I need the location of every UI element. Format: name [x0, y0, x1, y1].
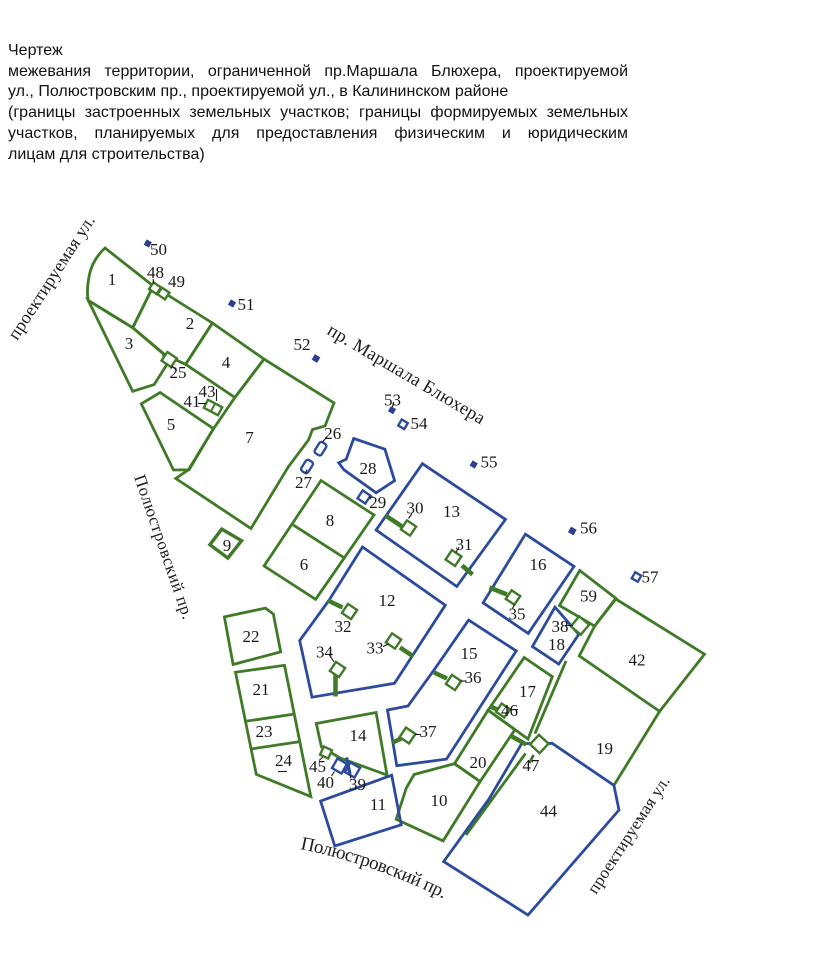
svg-text:24: 24 [275, 751, 293, 770]
svg-text:48: 48 [147, 263, 164, 282]
svg-text:14: 14 [350, 726, 368, 745]
svg-text:28: 28 [360, 459, 377, 478]
svg-text:9: 9 [223, 536, 232, 555]
svg-text:43: 43 [199, 382, 216, 401]
svg-text:59: 59 [580, 587, 597, 606]
svg-text:30: 30 [407, 499, 424, 518]
svg-text:20: 20 [470, 753, 487, 772]
svg-text:18: 18 [548, 635, 565, 654]
svg-text:50: 50 [150, 240, 167, 259]
svg-text:17: 17 [519, 682, 537, 701]
svg-text:15: 15 [461, 644, 478, 663]
svg-text:47: 47 [522, 756, 540, 775]
svg-text:34: 34 [316, 643, 334, 662]
svg-text:29: 29 [369, 493, 386, 512]
svg-text:33: 33 [367, 639, 384, 658]
svg-text:54: 54 [411, 414, 429, 433]
svg-text:31: 31 [456, 535, 473, 554]
svg-text:57: 57 [642, 568, 660, 587]
svg-text:25: 25 [170, 363, 187, 382]
svg-text:8: 8 [326, 511, 335, 530]
svg-text:12: 12 [379, 591, 396, 610]
svg-text:46: 46 [501, 701, 518, 720]
svg-text:6: 6 [300, 555, 309, 574]
svg-text:37: 37 [420, 722, 438, 741]
svg-text:5: 5 [167, 415, 176, 434]
svg-text:56: 56 [580, 519, 597, 538]
svg-text:23: 23 [256, 722, 273, 741]
svg-text:55: 55 [481, 453, 498, 472]
svg-text:11: 11 [370, 795, 386, 814]
svg-text:1: 1 [108, 270, 117, 289]
svg-text:Полюстровский пр.: Полюстровский пр. [299, 833, 450, 903]
svg-text:16: 16 [530, 555, 547, 574]
svg-text:32: 32 [335, 617, 352, 636]
svg-text:пр. Маршала Блюхера: пр. Маршала Блюхера [323, 321, 488, 430]
svg-text:44: 44 [540, 802, 558, 821]
svg-text:53: 53 [384, 391, 401, 410]
svg-text:13: 13 [443, 502, 460, 521]
svg-text:39: 39 [349, 775, 366, 794]
svg-text:35: 35 [509, 605, 526, 624]
svg-text:22: 22 [243, 627, 260, 646]
svg-text:10: 10 [431, 791, 448, 810]
svg-text:36: 36 [465, 668, 482, 687]
svg-text:проектируемая ул.: проектируемая ул. [4, 211, 99, 343]
svg-text:45: 45 [309, 757, 326, 776]
svg-text:42: 42 [629, 651, 646, 670]
svg-text:27: 27 [295, 473, 313, 492]
svg-text:4: 4 [222, 353, 231, 372]
svg-text:51: 51 [238, 295, 255, 314]
svg-text:2: 2 [186, 314, 195, 333]
svg-text:3: 3 [125, 334, 134, 353]
svg-text:21: 21 [253, 680, 270, 699]
svg-text:7: 7 [245, 428, 254, 447]
svg-text:19: 19 [596, 739, 613, 758]
svg-text:Полюстровский пр.: Полюстровский пр. [130, 472, 198, 622]
svg-text:52: 52 [294, 335, 311, 354]
svg-text:38: 38 [552, 617, 569, 636]
svg-text:26: 26 [324, 424, 341, 443]
svg-text:49: 49 [168, 272, 185, 291]
